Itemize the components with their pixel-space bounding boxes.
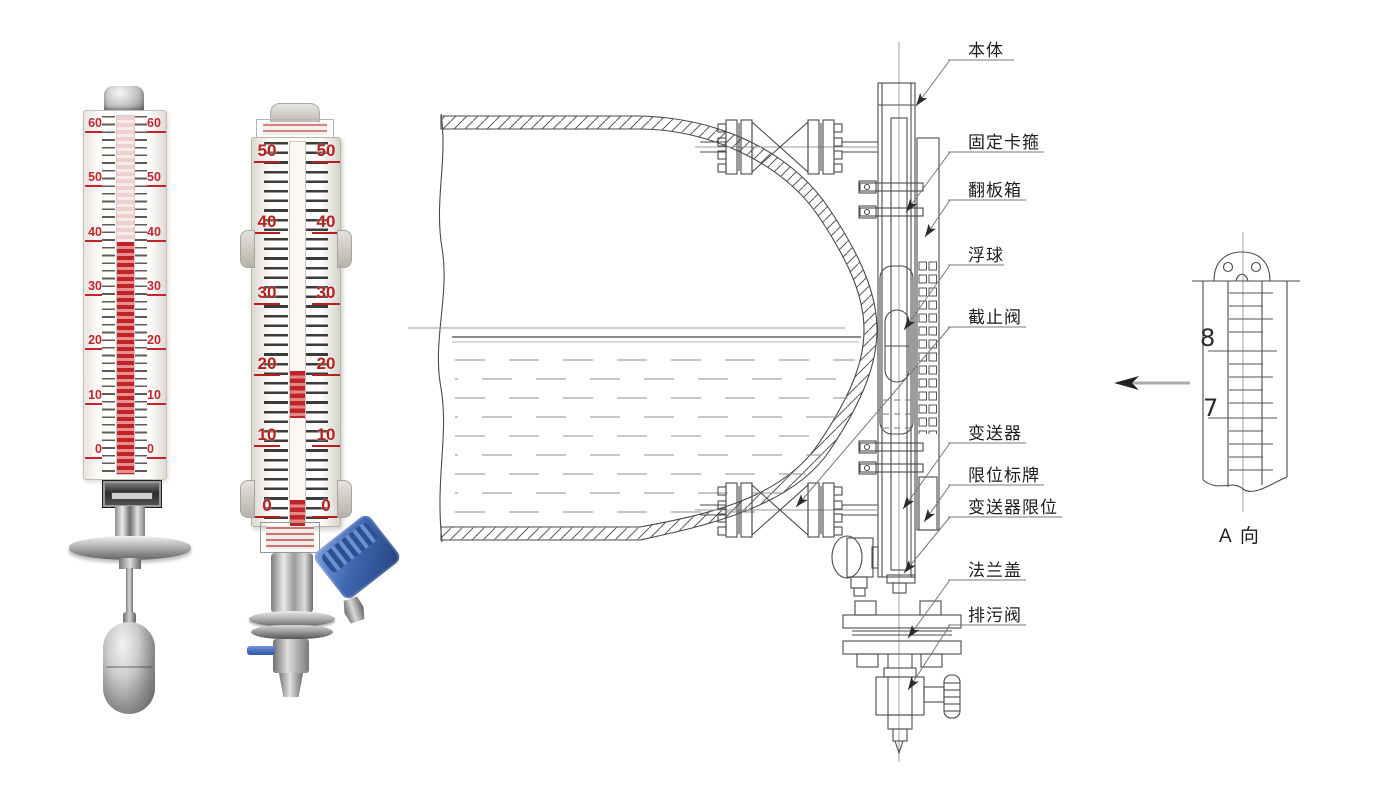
- transmitter-drawing: [832, 536, 878, 596]
- label-limit-plate: 限位标牌: [968, 461, 1040, 486]
- label-drain-valve: 排污阀: [968, 601, 1022, 626]
- label-transmitter: 变送器: [968, 419, 1022, 444]
- detail-number-7: 7: [1203, 394, 1218, 422]
- label-float-ball: 浮球: [968, 241, 1004, 266]
- label-transmitter-limit: 变送器限位: [968, 493, 1058, 518]
- flap-indicator-box-drawing: [917, 138, 939, 530]
- flange-cover-drawing: [843, 601, 961, 667]
- detail-break-edge: [1203, 477, 1287, 491]
- detail-number-8: 8: [1200, 324, 1215, 352]
- figure-canvas: 6050403020100 6050403020100 50403020100 …: [0, 0, 1387, 792]
- view-direction-arrow: [1114, 376, 1190, 390]
- tank-shell: [408, 114, 877, 542]
- detail-view-a: [1192, 232, 1300, 512]
- tank-liquid: [452, 337, 861, 512]
- drain-valve-drawing: [876, 654, 960, 753]
- label-flap-box: 翻板箱: [968, 176, 1022, 201]
- label-fixing-clamp: 固定卡箍: [968, 128, 1040, 153]
- detail-cap: [1214, 252, 1270, 281]
- detail-view-caption: A 向: [1219, 521, 1261, 548]
- label-stop-valve: 截止阀: [968, 303, 1022, 328]
- float-chamber-drawing: [880, 266, 913, 434]
- label-flange-cover: 法兰盖: [968, 556, 1022, 581]
- label-main-body: 本体: [968, 36, 1004, 61]
- installation-diagram: [0, 0, 1387, 792]
- limit-plate-drawing: [887, 575, 915, 593]
- detail-ruler-ticks: [1208, 293, 1277, 470]
